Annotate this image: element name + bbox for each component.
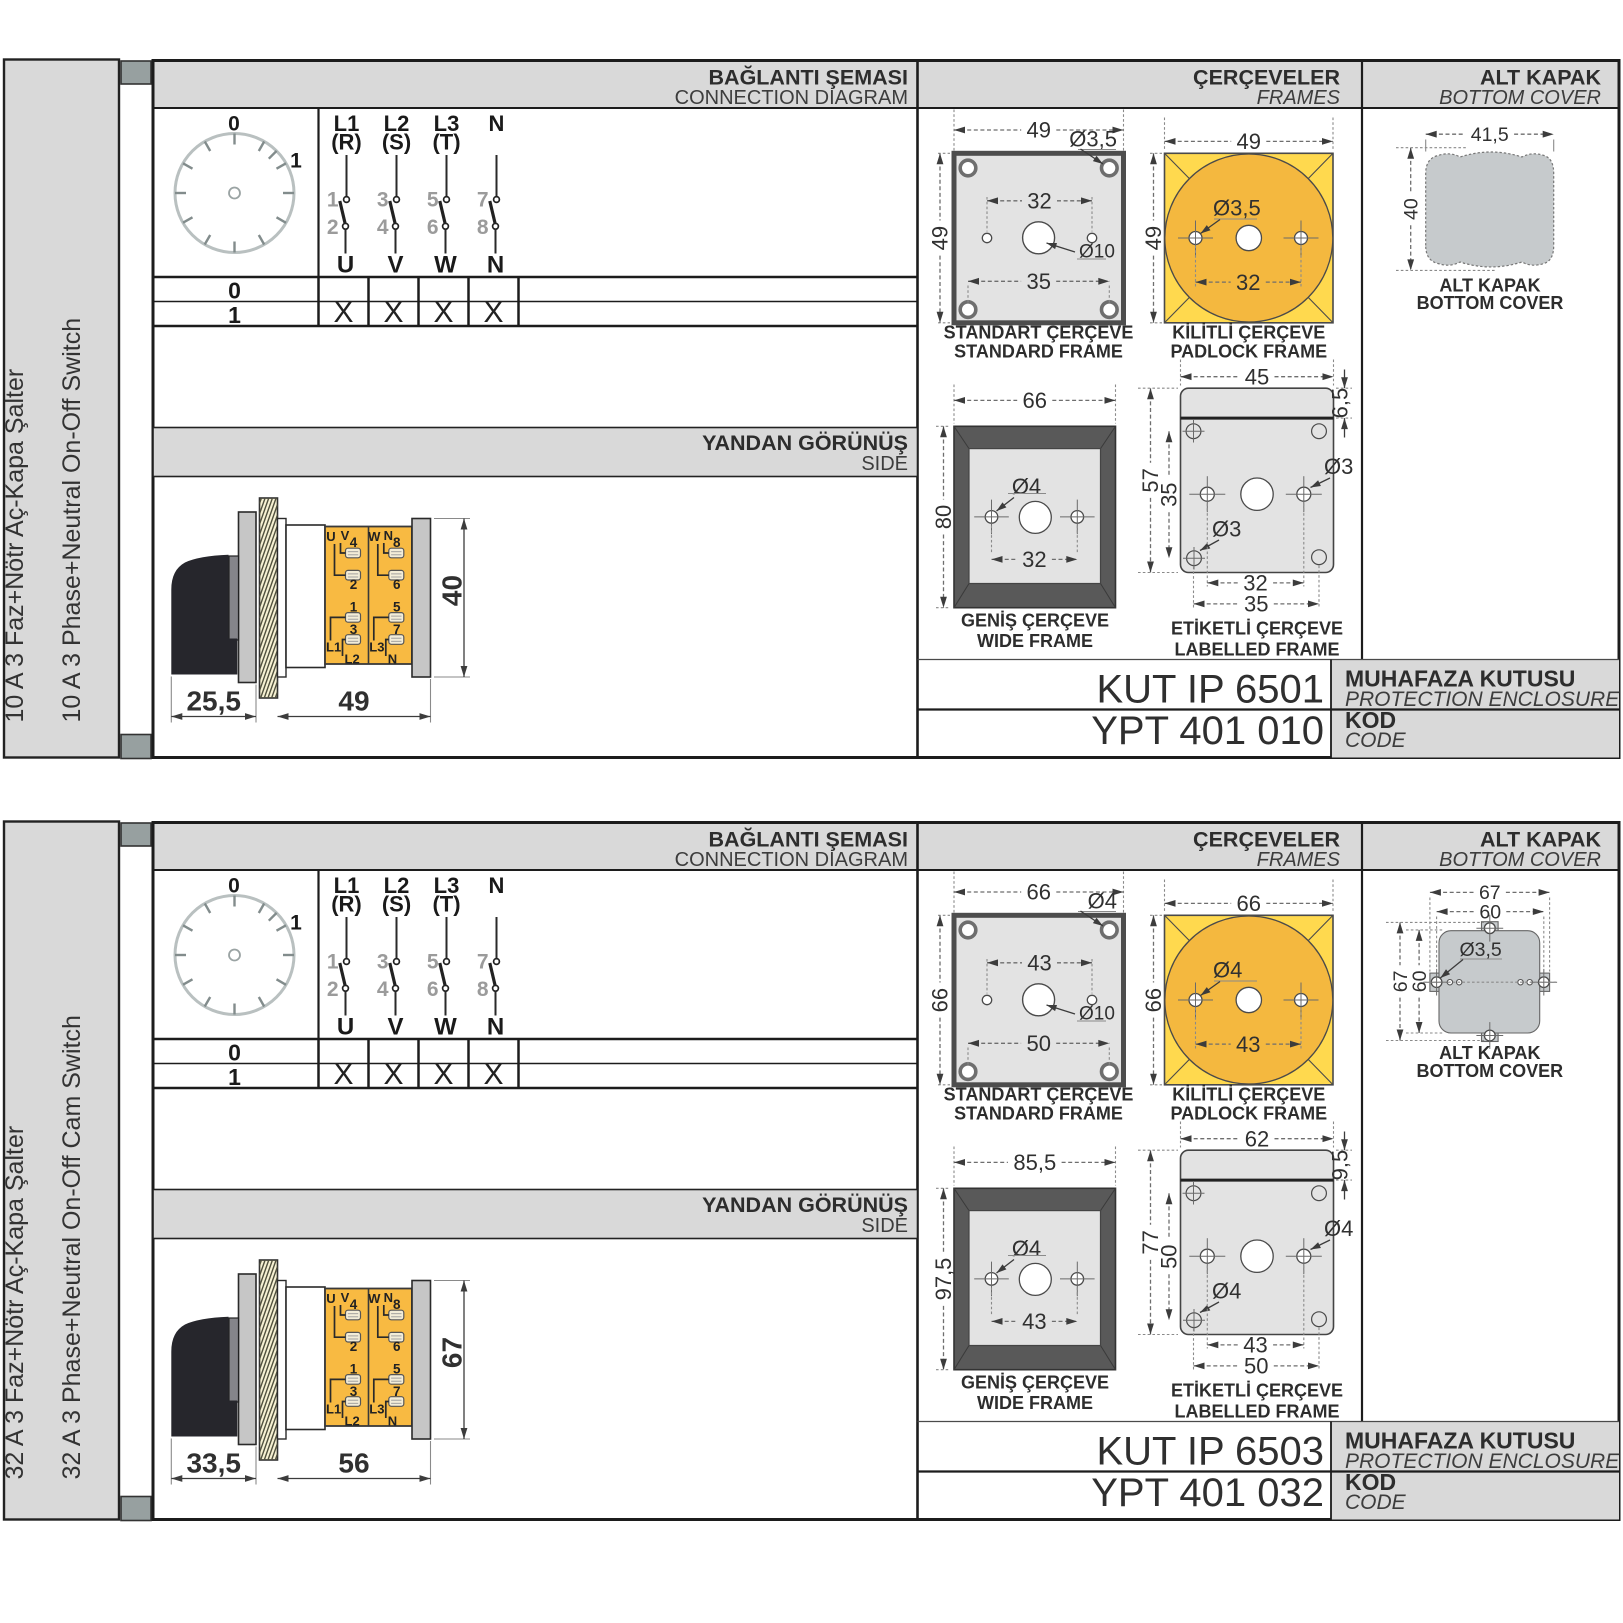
svg-text:10 A 3 Faz+Nötr Aç-Kapa Şalter: 10 A 3 Faz+Nötr Aç-Kapa Şalter [1, 369, 29, 723]
svg-text:W: W [368, 1291, 381, 1306]
svg-text:ETİKETLİ ÇERÇEVE: ETİKETLİ ÇERÇEVE [1171, 619, 1343, 639]
svg-text:LABELLED FRAME: LABELLED FRAME [1175, 640, 1340, 660]
svg-text:N: N [388, 1414, 397, 1429]
svg-text:(S): (S) [382, 130, 411, 155]
svg-text:CONNECTION DIAGRAM: CONNECTION DIAGRAM [675, 849, 908, 871]
svg-text:V: V [387, 1014, 403, 1041]
svg-text:Ø4: Ø4 [1012, 474, 1041, 499]
svg-text:Ø4: Ø4 [1088, 889, 1117, 914]
svg-text:45: 45 [1245, 364, 1269, 389]
svg-text:0: 0 [228, 875, 240, 898]
svg-text:8: 8 [477, 978, 489, 1001]
svg-text:32: 32 [1022, 547, 1046, 572]
svg-text:STANDART ÇERÇEVE: STANDART ÇERÇEVE [944, 323, 1134, 343]
svg-text:56: 56 [338, 1448, 369, 1479]
svg-text:2: 2 [327, 978, 339, 1001]
svg-text:(T): (T) [432, 130, 460, 155]
svg-text:U: U [337, 252, 354, 279]
svg-text:60: 60 [1409, 970, 1431, 992]
svg-text:7: 7 [393, 622, 401, 637]
svg-text:L1: L1 [326, 1402, 341, 1417]
svg-text:40: 40 [437, 575, 468, 606]
svg-text:1: 1 [228, 1064, 241, 1090]
svg-text:CODE: CODE [1345, 1491, 1407, 1514]
svg-text:STANDARD FRAME: STANDARD FRAME [954, 1104, 1123, 1124]
svg-text:1: 1 [290, 150, 302, 173]
svg-text:0: 0 [228, 113, 240, 136]
svg-text:Ø3,5: Ø3,5 [1213, 196, 1261, 221]
svg-text:35: 35 [1026, 269, 1050, 294]
svg-text:KİLİTLİ ÇERÇEVE: KİLİTLİ ÇERÇEVE [1172, 1085, 1325, 1105]
svg-text:X: X [383, 296, 403, 329]
svg-text:Ø4: Ø4 [1213, 958, 1242, 983]
svg-text:49: 49 [1027, 118, 1051, 143]
svg-text:BOTTOM COVER: BOTTOM COVER [1417, 293, 1564, 313]
svg-text:66: 66 [1023, 388, 1047, 413]
svg-text:66: 66 [1237, 891, 1261, 916]
svg-text:6: 6 [393, 577, 401, 592]
svg-text:1: 1 [228, 302, 241, 328]
svg-text:32: 32 [1027, 189, 1051, 214]
svg-text:SIDE: SIDE [861, 453, 908, 475]
svg-text:CONNECTION DIAGRAM: CONNECTION DIAGRAM [675, 87, 908, 109]
svg-text:N: N [487, 252, 504, 279]
svg-text:43: 43 [1022, 1309, 1046, 1334]
svg-text:7: 7 [477, 951, 489, 974]
svg-text:50: 50 [1157, 1244, 1182, 1268]
svg-text:1: 1 [327, 951, 339, 974]
svg-text:66: 66 [928, 988, 953, 1012]
svg-text:49: 49 [1237, 129, 1261, 154]
svg-text:6,5: 6,5 [1328, 388, 1353, 419]
svg-text:33,5: 33,5 [186, 1448, 241, 1479]
svg-text:5: 5 [427, 189, 439, 212]
svg-text:9,5: 9,5 [1328, 1150, 1353, 1181]
svg-text:KUT IP 6503: KUT IP 6503 [1096, 1430, 1324, 1474]
svg-text:N: N [384, 528, 393, 543]
svg-text:Ø3: Ø3 [1212, 517, 1241, 542]
svg-text:N: N [489, 111, 505, 136]
svg-text:32 A 3 Faz+Nötr Aç-Kapa Şalter: 32 A 3 Faz+Nötr Aç-Kapa Şalter [1, 1126, 29, 1480]
svg-text:3: 3 [377, 951, 389, 974]
svg-text:X: X [433, 1058, 453, 1091]
svg-text:8: 8 [393, 535, 401, 550]
svg-text:N: N [489, 873, 505, 898]
svg-text:WIDE FRAME: WIDE FRAME [977, 1393, 1093, 1413]
svg-text:Ø10: Ø10 [1079, 242, 1115, 263]
svg-text:Ø10: Ø10 [1079, 1004, 1115, 1025]
svg-text:W: W [368, 529, 381, 544]
svg-text:(R): (R) [331, 892, 362, 917]
svg-text:YPT 401 032: YPT 401 032 [1091, 1471, 1324, 1515]
svg-text:GENİŞ ÇERÇEVE: GENİŞ ÇERÇEVE [961, 611, 1109, 631]
svg-text:BOTTOM COVER: BOTTOM COVER [1439, 87, 1601, 109]
svg-text:X: X [433, 296, 453, 329]
svg-text:(R): (R) [331, 130, 362, 155]
svg-text:YANDAN GÖRÜNÜŞ: YANDAN GÖRÜNÜŞ [702, 430, 908, 455]
svg-text:50: 50 [1244, 1354, 1268, 1379]
svg-text:50: 50 [1026, 1031, 1050, 1056]
svg-text:Ø4: Ø4 [1012, 1236, 1041, 1261]
svg-text:7: 7 [393, 1384, 401, 1399]
svg-text:FRAMES: FRAMES [1257, 849, 1341, 871]
svg-text:BAĞLANTI ŞEMASI: BAĞLANTI ŞEMASI [709, 827, 908, 852]
svg-text:85,5: 85,5 [1013, 1150, 1056, 1175]
svg-text:3: 3 [377, 189, 389, 212]
svg-text:8: 8 [477, 216, 489, 239]
svg-text:ALT KAPAK: ALT KAPAK [1480, 66, 1601, 90]
svg-text:6: 6 [427, 978, 439, 1001]
svg-text:N: N [388, 652, 397, 667]
svg-text:BOTTOM COVER: BOTTOM COVER [1416, 1061, 1563, 1081]
svg-text:67: 67 [437, 1337, 468, 1368]
svg-text:(T): (T) [432, 892, 460, 917]
svg-text:Ø3,5: Ø3,5 [1460, 939, 1502, 961]
svg-text:GENİŞ ÇERÇEVE: GENİŞ ÇERÇEVE [961, 1373, 1109, 1393]
svg-text:ÇERÇEVELER: ÇERÇEVELER [1193, 828, 1340, 852]
svg-text:CODE: CODE [1345, 729, 1407, 752]
svg-text:25,5: 25,5 [186, 686, 241, 717]
svg-text:WIDE FRAME: WIDE FRAME [977, 631, 1093, 651]
svg-text:FRAMES: FRAMES [1257, 87, 1341, 109]
svg-text:KİLİTLİ ÇERÇEVE: KİLİTLİ ÇERÇEVE [1172, 323, 1325, 343]
svg-text:PADLOCK FRAME: PADLOCK FRAME [1170, 342, 1327, 362]
svg-text:ÇERÇEVELER: ÇERÇEVELER [1193, 66, 1340, 90]
svg-text:49: 49 [1141, 226, 1166, 250]
svg-text:43: 43 [1236, 1032, 1260, 1057]
svg-text:PADLOCK FRAME: PADLOCK FRAME [1170, 1104, 1327, 1124]
svg-text:5: 5 [393, 1362, 401, 1377]
svg-text:43: 43 [1027, 951, 1051, 976]
svg-text:62: 62 [1245, 1126, 1269, 1151]
svg-text:5: 5 [427, 951, 439, 974]
svg-text:1: 1 [350, 1362, 358, 1377]
svg-text:1: 1 [350, 600, 358, 615]
svg-text:(S): (S) [382, 892, 411, 917]
svg-text:YANDAN GÖRÜNÜŞ: YANDAN GÖRÜNÜŞ [702, 1192, 908, 1217]
svg-text:X: X [383, 1058, 403, 1091]
svg-text:BAĞLANTI ŞEMASI: BAĞLANTI ŞEMASI [709, 65, 908, 90]
svg-text:L3: L3 [369, 1402, 384, 1417]
svg-text:66: 66 [1141, 988, 1166, 1012]
svg-text:35: 35 [1157, 482, 1182, 506]
svg-text:49: 49 [928, 226, 953, 250]
svg-text:4: 4 [350, 1297, 358, 1312]
svg-text:0: 0 [228, 278, 241, 304]
svg-text:3: 3 [350, 1384, 358, 1399]
svg-text:STANDARD FRAME: STANDARD FRAME [954, 342, 1123, 362]
svg-text:X: X [483, 296, 503, 329]
svg-text:2: 2 [350, 1339, 358, 1354]
svg-text:W: W [434, 1014, 457, 1041]
svg-text:10 A 3 Phase+Neutral On-Off Sw: 10 A 3 Phase+Neutral On-Off Switch [58, 318, 86, 723]
svg-text:V: V [387, 252, 403, 279]
svg-text:1: 1 [327, 189, 339, 212]
svg-text:U: U [337, 1014, 354, 1041]
svg-text:35: 35 [1244, 592, 1268, 617]
svg-text:L1: L1 [326, 640, 341, 655]
svg-text:Ø4: Ø4 [1212, 1279, 1241, 1304]
svg-text:5: 5 [393, 600, 401, 615]
svg-text:ETİKETLİ ÇERÇEVE: ETİKETLİ ÇERÇEVE [1171, 1381, 1343, 1401]
svg-text:U: U [326, 529, 335, 544]
svg-text:YPT 401 010: YPT 401 010 [1091, 709, 1324, 753]
svg-text:Ø3,5: Ø3,5 [1069, 127, 1117, 152]
svg-text:N: N [487, 1014, 504, 1041]
svg-text:BOTTOM COVER: BOTTOM COVER [1439, 849, 1601, 871]
svg-text:X: X [333, 296, 353, 329]
svg-text:40: 40 [1401, 198, 1423, 220]
svg-text:7: 7 [477, 189, 489, 212]
svg-text:66: 66 [1027, 880, 1051, 905]
svg-text:6: 6 [393, 1339, 401, 1354]
svg-text:SIDE: SIDE [861, 1215, 908, 1237]
svg-text:60: 60 [1479, 901, 1501, 923]
svg-text:0: 0 [228, 1040, 241, 1066]
svg-text:8: 8 [393, 1297, 401, 1312]
svg-text:49: 49 [338, 686, 369, 717]
svg-text:KUT IP 6501: KUT IP 6501 [1096, 668, 1324, 712]
svg-text:W: W [434, 252, 457, 279]
svg-text:2: 2 [327, 216, 339, 239]
svg-text:1: 1 [290, 912, 302, 935]
svg-text:N: N [384, 1290, 393, 1305]
svg-text:4: 4 [377, 216, 389, 239]
svg-text:97,5: 97,5 [931, 1258, 956, 1301]
svg-text:ALT KAPAK: ALT KAPAK [1439, 1043, 1540, 1063]
svg-text:LABELLED FRAME: LABELLED FRAME [1175, 1402, 1340, 1422]
svg-text:V: V [341, 1290, 350, 1305]
svg-text:4: 4 [350, 535, 358, 550]
svg-text:L2: L2 [345, 652, 360, 667]
svg-text:80: 80 [931, 505, 956, 529]
svg-text:X: X [333, 1058, 353, 1091]
svg-text:ALT KAPAK: ALT KAPAK [1480, 828, 1601, 852]
svg-text:32: 32 [1236, 270, 1260, 295]
svg-text:L3: L3 [369, 640, 384, 655]
svg-text:L2: L2 [345, 1414, 360, 1429]
svg-text:V: V [341, 528, 350, 543]
svg-text:2: 2 [350, 577, 358, 592]
svg-text:U: U [326, 1291, 335, 1306]
svg-text:Ø3: Ø3 [1324, 454, 1353, 479]
svg-text:4: 4 [377, 978, 389, 1001]
svg-text:3: 3 [350, 622, 358, 637]
svg-text:Ø4: Ø4 [1324, 1216, 1353, 1241]
svg-text:STANDART ÇERÇEVE: STANDART ÇERÇEVE [944, 1085, 1134, 1105]
svg-text:32 A 3 Phase+Neutral On-Off Ca: 32 A 3 Phase+Neutral On-Off Cam Switch [58, 1015, 86, 1479]
svg-text:X: X [483, 1058, 503, 1091]
svg-text:41,5: 41,5 [1471, 124, 1509, 146]
svg-text:6: 6 [427, 216, 439, 239]
